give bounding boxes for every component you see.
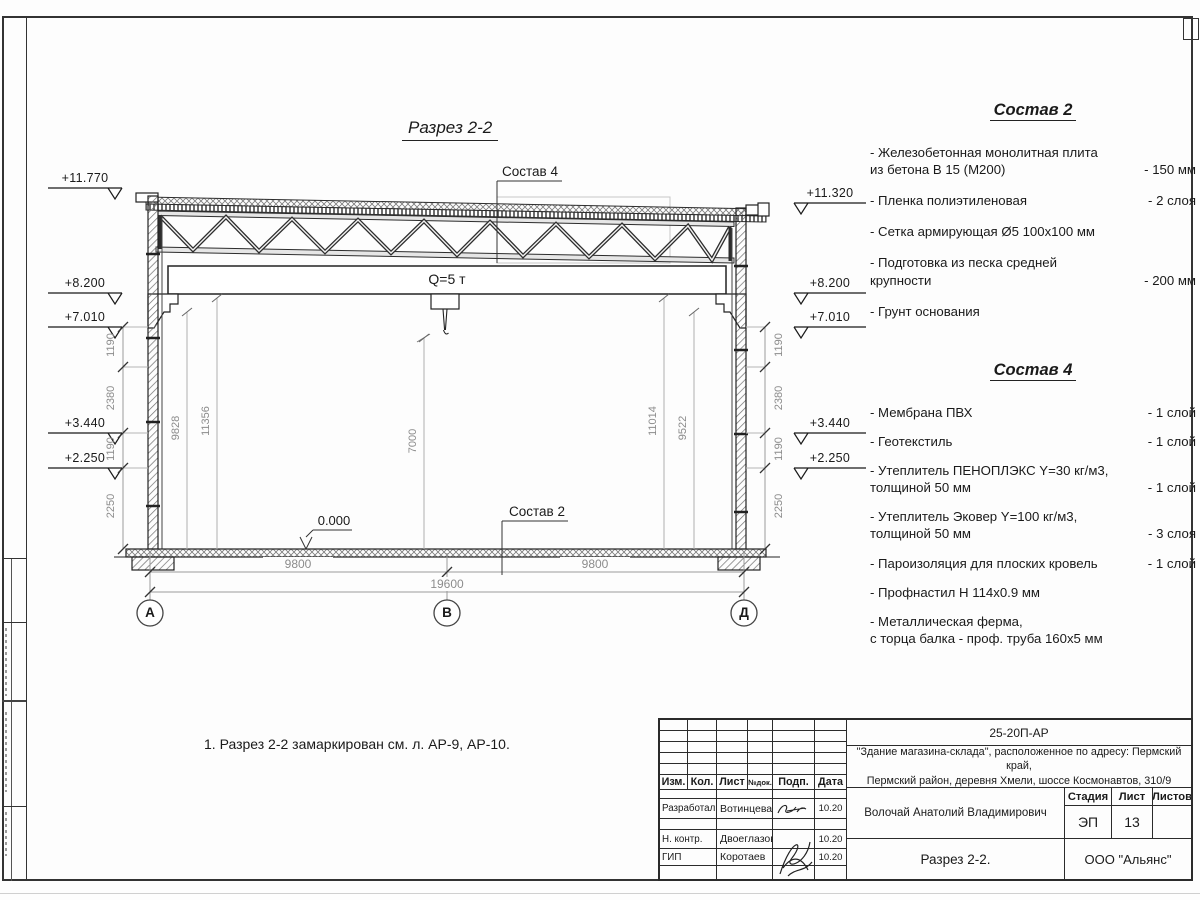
dim-label: 1190 xyxy=(773,419,785,479)
dim-label: 11014 xyxy=(647,391,659,451)
dim-label: 1190 xyxy=(105,315,117,375)
stage-label: Стадия xyxy=(1065,788,1112,806)
col-ndok: №док. xyxy=(748,775,773,790)
row-ncontrol-date: 10.20 xyxy=(815,830,847,849)
row-gip-name: Коротаев xyxy=(717,849,773,866)
elevation-label: +11.320 xyxy=(792,186,868,200)
document-code: 25-20П-АР xyxy=(847,720,1191,746)
elevation-label: +2.250 xyxy=(792,451,868,465)
callout-roof: Состав 4 xyxy=(494,164,566,179)
crane-capacity-label: Q=5 т xyxy=(402,271,492,287)
legend-sostav-4-title: Состав 4 xyxy=(870,360,1196,382)
interior-dims xyxy=(187,298,694,549)
legend-item: - Железобетонная монолитная плита из бет… xyxy=(870,144,1196,178)
elevation-label: +11.770 xyxy=(47,171,123,185)
sheet-title: Разрез 2-2. xyxy=(847,839,1065,879)
drawing-note: 1. Разрез 2-2 замаркирован см. л. АР-9, … xyxy=(204,736,510,752)
legend-item: - Грунт основания xyxy=(870,303,1196,320)
dim-label: 19600 xyxy=(412,577,482,591)
col-izm: Изм. xyxy=(660,775,688,790)
col-list: Лист xyxy=(717,775,748,790)
axis-bubble-d: Д xyxy=(731,605,757,620)
legend-item: - Геотекстиль- 1 слой xyxy=(870,433,1196,450)
sheet-label: Лист xyxy=(1112,788,1153,806)
col-podp: Подп. xyxy=(773,775,815,790)
dim-label: 1190 xyxy=(105,419,117,479)
legend-item: - Подготовка из песка средней крупности-… xyxy=(870,254,1196,288)
dim-chains xyxy=(118,322,770,554)
legend-item: - Пароизоляция для плоских кровель- 1 сл… xyxy=(870,555,1196,572)
author-name: Волочай Анатолий Владимирович xyxy=(847,788,1065,839)
row-developer-name: Вотинцева xyxy=(717,799,773,819)
col-data: Дата xyxy=(815,775,847,790)
sheets-total xyxy=(1153,806,1191,839)
dim-label: 2250 xyxy=(773,476,785,536)
row-developer-role: Разработал xyxy=(660,799,717,819)
dim-label: 7000 xyxy=(407,411,419,471)
drawing-sheet: Разрез 2-2 Q=5 т 0.000 Состав 4 Состав 2… xyxy=(0,0,1200,900)
dim-label: 9800 xyxy=(263,557,333,571)
dim-label: 2250 xyxy=(105,476,117,536)
elevation-label: +7.010 xyxy=(792,310,868,324)
dim-label: 9800 xyxy=(560,557,630,571)
legend-item: - Мембрана ПВХ- 1 слой xyxy=(870,404,1196,421)
legend-item: - Пленка полиэтиленовая- 2 слоя xyxy=(870,192,1196,209)
row-gip-date: 10.20 xyxy=(815,849,847,866)
stage-value: ЭП xyxy=(1065,806,1112,839)
row-developer-signature xyxy=(773,799,815,819)
title-block-revision-grid: Изм. Кол. Лист №док. Подп. Дата Разработ… xyxy=(660,720,847,879)
dim-label: 11356 xyxy=(200,391,212,451)
row-ncontrol-name: Двоеглазов xyxy=(717,830,773,849)
company-name: ООО "Альянс" xyxy=(1065,839,1191,879)
axis-bubble-a: А xyxy=(137,605,163,620)
legend-sostav-2-title: Состав 2 xyxy=(870,100,1196,122)
elevation-label: +8.200 xyxy=(47,276,123,290)
col-kol: Кол. xyxy=(688,775,717,790)
callout-floor: Состав 2 xyxy=(501,504,573,519)
row-gip-role: ГИП xyxy=(660,849,717,866)
sheets-label: Листов xyxy=(1153,788,1191,806)
dim-label: 9522 xyxy=(677,398,689,458)
row-ncontrol-role: Н. контр. xyxy=(660,830,717,849)
legend-item: - Профнастил Н 114х0.9 мм xyxy=(870,584,1196,601)
section-title: Разрез 2-2 xyxy=(402,118,498,141)
legend-item: - Сетка армирующая Ø5 100х100 мм xyxy=(870,223,1196,240)
elevation-label: +3.440 xyxy=(792,416,868,430)
zero-level-label: 0.000 xyxy=(311,513,357,528)
legend-item: - Утеплитель ПЕНОПЛЭКС Y=30 кг/м3, толщи… xyxy=(870,462,1196,496)
project-description: "Здание магазина-склада", расположенное … xyxy=(847,746,1191,788)
elevation-label: +8.200 xyxy=(792,276,868,290)
title-block: Изм. Кол. Лист №док. Подп. Дата Разработ… xyxy=(658,718,1193,881)
row-developer-date: 10.20 xyxy=(815,799,847,819)
dim-label: 1190 xyxy=(773,315,785,375)
legend-item: - Металлическая ферма, с торца балка - п… xyxy=(870,613,1196,647)
signature-icon xyxy=(775,801,813,817)
sheet-number: 13 xyxy=(1112,806,1153,839)
dim-label: 9828 xyxy=(170,398,182,458)
legend-item: - Утеплитель Эковер Y=100 кг/м3, толщино… xyxy=(870,508,1196,542)
legend-panel: Состав 2 - Железобетонная монолитная пли… xyxy=(870,100,1196,659)
axis-bubble-v: В xyxy=(434,605,460,620)
